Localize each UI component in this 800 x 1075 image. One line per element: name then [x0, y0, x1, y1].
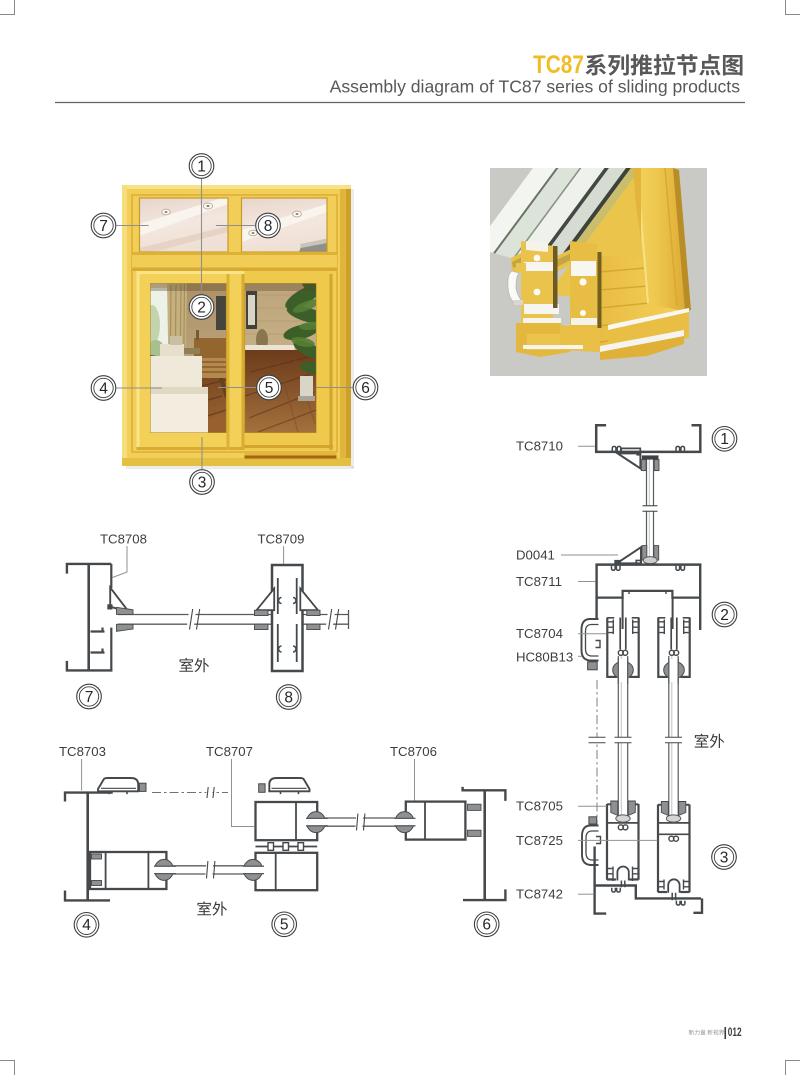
svg-text:7: 7 — [99, 218, 108, 235]
svg-text:8: 8 — [284, 689, 293, 706]
svg-text:TC8711: TC8711 — [516, 574, 562, 589]
svg-text:TC8709: TC8709 — [258, 532, 305, 547]
svg-text:5: 5 — [280, 917, 289, 934]
svg-text:TC8705: TC8705 — [516, 799, 563, 814]
svg-text:TC8742: TC8742 — [516, 887, 563, 902]
svg-text:6: 6 — [482, 917, 491, 934]
svg-text:TC87: TC87 — [533, 51, 584, 79]
svg-text:2: 2 — [197, 299, 206, 316]
svg-text:TC8706: TC8706 — [390, 744, 437, 759]
svg-text:1: 1 — [720, 431, 729, 448]
svg-text:2: 2 — [720, 607, 729, 624]
svg-text:5: 5 — [265, 380, 274, 397]
svg-text:4: 4 — [82, 917, 91, 934]
svg-text:TC8710: TC8710 — [516, 439, 563, 454]
svg-text:Assembly diagram of TC87 serie: Assembly diagram of TC87 series of slidi… — [330, 77, 741, 97]
svg-text:|: | — [724, 1026, 728, 1040]
svg-text:TC8708: TC8708 — [100, 532, 147, 547]
svg-text:7: 7 — [85, 689, 94, 706]
svg-text:6: 6 — [361, 380, 370, 397]
svg-text:1: 1 — [197, 158, 206, 175]
svg-text:HC80B13: HC80B13 — [516, 650, 573, 665]
svg-text:TC8703: TC8703 — [59, 744, 106, 759]
svg-text:8: 8 — [264, 218, 273, 235]
svg-text:3: 3 — [198, 474, 207, 491]
svg-text:D0041: D0041 — [516, 547, 555, 562]
svg-text:3: 3 — [720, 849, 729, 866]
svg-text:TC8725: TC8725 — [516, 833, 563, 848]
svg-text:TC8707: TC8707 — [206, 744, 253, 759]
svg-text:4: 4 — [99, 380, 108, 397]
svg-text:TC8704: TC8704 — [516, 626, 563, 641]
svg-text:012: 012 — [728, 1025, 742, 1039]
